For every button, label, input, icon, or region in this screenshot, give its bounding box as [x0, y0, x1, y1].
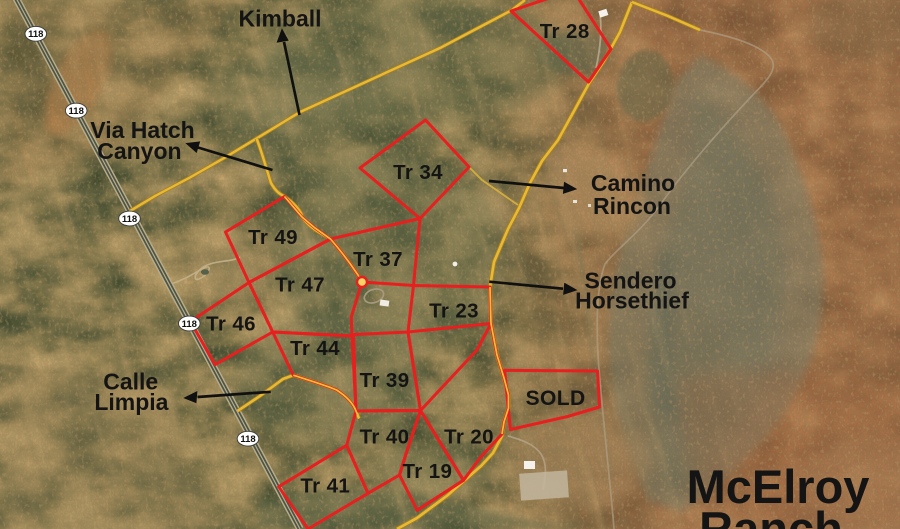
- svg-text:Tr 39: Tr 39: [360, 369, 410, 392]
- svg-text:Kimball: Kimball: [238, 6, 321, 32]
- svg-text:Tr 34: Tr 34: [393, 161, 443, 184]
- svg-text:Tr 37: Tr 37: [353, 248, 403, 271]
- svg-text:SOLD: SOLD: [526, 387, 586, 410]
- svg-text:Tr 49: Tr 49: [248, 226, 298, 249]
- svg-text:118: 118: [240, 434, 255, 445]
- svg-text:Tr 46: Tr 46: [206, 313, 256, 336]
- svg-text:Tr 19: Tr 19: [402, 460, 452, 483]
- svg-text:Limpia: Limpia: [94, 389, 168, 415]
- svg-text:Tr 28: Tr 28: [540, 20, 590, 43]
- svg-text:118: 118: [182, 319, 197, 330]
- svg-text:Rincon: Rincon: [593, 193, 671, 219]
- svg-text:Tr 44: Tr 44: [290, 337, 340, 360]
- svg-text:Tr 23: Tr 23: [429, 300, 479, 323]
- svg-text:Tr 20: Tr 20: [444, 426, 494, 449]
- svg-text:118: 118: [122, 214, 137, 225]
- svg-text:Tr 40: Tr 40: [360, 426, 410, 449]
- svg-text:Tr 41: Tr 41: [300, 475, 350, 498]
- svg-text:118: 118: [28, 29, 43, 40]
- svg-text:Canyon: Canyon: [97, 138, 181, 164]
- svg-text:Ranch: Ranch: [699, 502, 843, 529]
- svg-text:Tr 47: Tr 47: [275, 274, 325, 297]
- svg-text:Horsethief: Horsethief: [575, 288, 689, 314]
- svg-text:118: 118: [69, 106, 84, 117]
